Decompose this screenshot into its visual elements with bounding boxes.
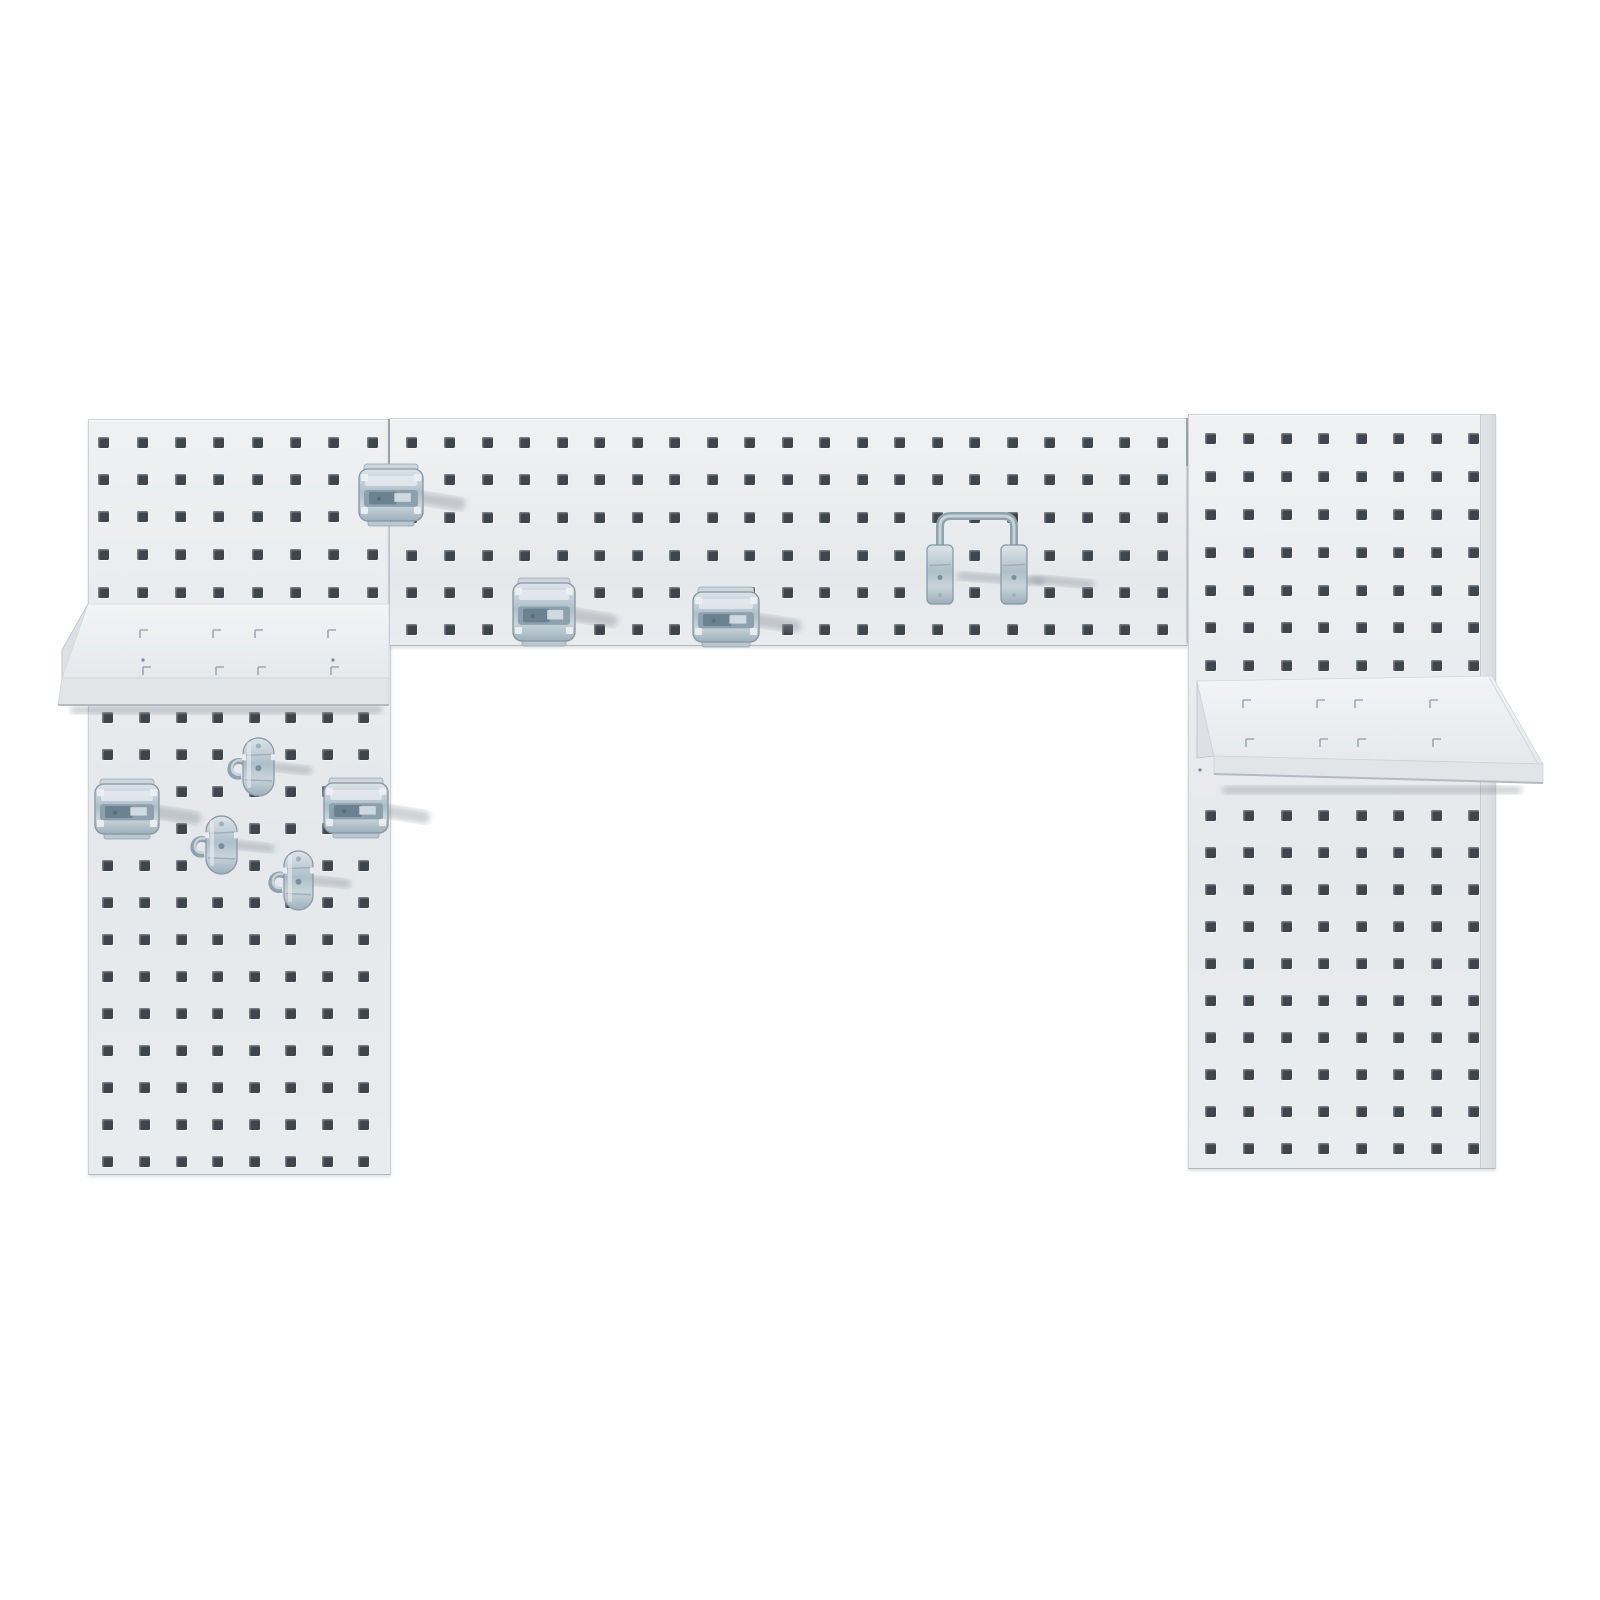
pegboard-hole	[1205, 471, 1216, 482]
pegboard-hole	[1431, 958, 1442, 969]
pegboard-hole	[1082, 512, 1093, 523]
pegboard-hole	[139, 712, 150, 723]
pegboard-hole	[1431, 585, 1442, 596]
pegboard-hole	[367, 587, 378, 598]
pegboard-hole	[212, 1156, 223, 1167]
pegboard-hole	[1082, 474, 1093, 485]
pegboard-hole	[1082, 437, 1093, 448]
pegboard-hole	[1468, 547, 1479, 558]
pegboard-hole	[1318, 509, 1329, 520]
pegboard-hole	[1205, 660, 1216, 671]
pegboard-hole	[932, 474, 943, 485]
pegboard-hole	[322, 897, 333, 908]
pegboard-hole	[322, 1156, 333, 1167]
pegboard-hole	[1356, 921, 1367, 932]
pegboard-hole	[137, 511, 148, 522]
pegboard-hole	[1356, 585, 1367, 596]
pegboard-hole	[707, 512, 718, 523]
pegboard-hole	[444, 437, 455, 448]
pegboard-hole	[285, 934, 296, 945]
pegboard-hole	[212, 1008, 223, 1019]
pegboard-hole	[669, 474, 680, 485]
pegboard-hole	[1044, 624, 1055, 635]
pegboard-hole	[1393, 884, 1404, 895]
pegboard-hole	[932, 587, 943, 598]
pegboard-hole	[322, 749, 333, 760]
pegboard-hole	[285, 1119, 296, 1130]
pegboard-hole	[1243, 921, 1254, 932]
pegboard-hole	[358, 1156, 369, 1167]
pegboard-hole	[1243, 1032, 1254, 1043]
pegboard-hole	[1243, 847, 1254, 858]
pegboard-hole	[249, 1045, 260, 1056]
pegboard-hole	[1356, 1069, 1367, 1080]
pegboard-hole	[1044, 512, 1055, 523]
pegboard-hole	[594, 550, 605, 561]
pegboard-hole	[1281, 1106, 1292, 1117]
pegboard-hole	[175, 549, 186, 560]
pegboard-hole	[358, 712, 369, 723]
pegboard-hole	[1044, 474, 1055, 485]
pegboard-hole	[857, 587, 868, 598]
pegboard-hole	[1393, 1143, 1404, 1154]
pegboard-hole	[932, 624, 943, 635]
pegboard-hole	[1044, 587, 1055, 598]
pegboard-hole	[1318, 1069, 1329, 1080]
pegboard-hole	[632, 587, 643, 598]
pegboard-hole	[358, 749, 369, 760]
pegboard-hole	[969, 624, 980, 635]
pegboard-hole	[632, 624, 643, 635]
pegboard-hole	[249, 1008, 260, 1019]
pegboard-hole	[176, 897, 187, 908]
pegboard-hole	[1468, 1143, 1479, 1154]
pegboard-hole	[444, 474, 455, 485]
pegboard-hole	[1318, 1032, 1329, 1043]
pegboard-hole	[1007, 512, 1018, 523]
pegboard-hole	[137, 437, 148, 448]
pegboard-hole	[98, 511, 109, 522]
pegboard-hole	[102, 934, 113, 945]
pegboard-hole	[632, 474, 643, 485]
pegboard-hole	[1281, 509, 1292, 520]
pegboard-hole	[1243, 509, 1254, 520]
pegboard-hole	[249, 712, 260, 723]
pegboard-hole	[1356, 810, 1367, 821]
pegboard-hole	[894, 474, 905, 485]
pegboard-hole	[1205, 1069, 1216, 1080]
pegboard-hole	[322, 823, 333, 834]
pegboard-hole	[176, 860, 187, 871]
pegboard-hole	[176, 934, 187, 945]
pegboard-hole	[139, 1008, 150, 1019]
pegboard-hole	[137, 474, 148, 485]
pegboard-hole	[1243, 433, 1254, 444]
pegboard-hole	[139, 934, 150, 945]
pegboard-hole	[249, 934, 260, 945]
pegboard-hole	[249, 1082, 260, 1093]
pegboard-hole	[857, 437, 868, 448]
pegboard-hole	[1007, 550, 1018, 561]
pegboard-hole	[1205, 509, 1216, 520]
pegboard-hole	[444, 550, 455, 561]
pegboard-hole	[1243, 884, 1254, 895]
pegboard-hole	[139, 823, 150, 834]
pegboard-hole	[328, 437, 339, 448]
pegboard-hole	[1281, 1032, 1292, 1043]
pegboard-hole	[1205, 884, 1216, 895]
pegboard-hole	[212, 786, 223, 797]
pegboard-hole	[1431, 1032, 1442, 1043]
pegboard-hole	[322, 1008, 333, 1019]
pegboard-hole	[139, 971, 150, 982]
pegboard-hole	[557, 474, 568, 485]
pegboard-hole	[1205, 433, 1216, 444]
pegboard-hole	[1157, 512, 1168, 523]
pegboard-hole	[322, 860, 333, 871]
pegboard-hole	[1468, 622, 1479, 633]
pegboard-hole	[1318, 847, 1329, 858]
pegboard-hole	[857, 550, 868, 561]
pegboard-hole	[176, 1082, 187, 1093]
pegboard-hole	[367, 549, 378, 560]
pegboard-hole	[482, 550, 493, 561]
pegboard-hole	[176, 1119, 187, 1130]
pegboard-hole	[290, 511, 301, 522]
pegboard-hole	[1393, 471, 1404, 482]
pegboard-hole	[444, 587, 455, 598]
pegboard-hole	[1281, 921, 1292, 932]
pegboard-hole	[212, 1045, 223, 1056]
pegboard-hole	[175, 511, 186, 522]
pegboard-hole	[1007, 474, 1018, 485]
pegboard-hole	[894, 624, 905, 635]
pegboard-hole	[102, 1045, 113, 1056]
pegboard-hole	[1205, 810, 1216, 821]
pegboard-hole	[1243, 995, 1254, 1006]
pegboard-hole	[1431, 810, 1442, 821]
pegboard-hole	[322, 1119, 333, 1130]
pegboard-hole	[176, 971, 187, 982]
pegboard-hole	[1243, 471, 1254, 482]
pegboard-hole	[1205, 585, 1216, 596]
pegboard-hole	[139, 1045, 150, 1056]
pegboard-hole	[139, 860, 150, 871]
pegboard-hole	[782, 512, 793, 523]
pegboard-hole	[557, 512, 568, 523]
pegboard-hole	[1243, 660, 1254, 671]
pegboard-hole	[1393, 810, 1404, 821]
pegboard-hole	[1318, 1106, 1329, 1117]
pegboard-hole	[322, 971, 333, 982]
pegboard-hole	[1119, 624, 1130, 635]
pegboard-hole	[102, 1082, 113, 1093]
pegboard-hole	[1119, 512, 1130, 523]
pegboard-hole	[819, 550, 830, 561]
pegboard-hole	[139, 1119, 150, 1130]
pegboard-hole	[139, 1156, 150, 1167]
pegboard-hole	[1281, 1143, 1292, 1154]
pegboard-hole	[358, 823, 369, 834]
pegboard-hole	[1318, 1143, 1329, 1154]
pegboard-hole	[102, 712, 113, 723]
pegboard-hole	[358, 860, 369, 871]
pegboard-hole	[406, 512, 417, 523]
pegboard-hole	[1157, 437, 1168, 448]
pegboard-hole	[669, 512, 680, 523]
pegboard-hole	[1468, 1069, 1479, 1080]
pegboard-hole	[328, 511, 339, 522]
pegboard-hole	[1468, 1106, 1479, 1117]
pegboard-hole	[139, 749, 150, 760]
pegboard-hole	[482, 624, 493, 635]
pegboard-panel-right-edge-fold	[1480, 415, 1495, 1168]
pegboard-hole	[1044, 437, 1055, 448]
pegboard-hole	[1468, 847, 1479, 858]
pegboard-hole	[212, 971, 223, 982]
pegboard-hole	[102, 1119, 113, 1130]
pegboard-hole	[358, 786, 369, 797]
pegboard-hole	[707, 624, 718, 635]
pegboard-hole	[1356, 660, 1367, 671]
pegboard-hole	[1205, 1106, 1216, 1117]
pegboard-hole	[969, 512, 980, 523]
pegboard-panel-left	[88, 419, 391, 1175]
pegboard-hole	[358, 1045, 369, 1056]
pegboard-hole	[213, 511, 224, 522]
pegboard-hole	[1157, 587, 1168, 598]
pegboard-hole	[249, 786, 260, 797]
pegboard-hole	[594, 512, 605, 523]
pegboard-hole	[139, 786, 150, 797]
pegboard-hole	[358, 971, 369, 982]
pegboard-hole	[1205, 921, 1216, 932]
pegboard-hole	[482, 587, 493, 598]
pegboard-hole	[367, 511, 378, 522]
pegboard-hole	[285, 971, 296, 982]
pegboard-hole	[1044, 550, 1055, 561]
pegboard-hole	[819, 624, 830, 635]
pegboard-hole	[406, 587, 417, 598]
pegboard-hole	[1243, 958, 1254, 969]
pegboard-hole	[1318, 921, 1329, 932]
pegboard-hole	[1431, 471, 1442, 482]
pegboard-hole	[482, 474, 493, 485]
pegboard-hole	[707, 437, 718, 448]
pegboard-hole	[285, 1008, 296, 1019]
pegboard-hole	[358, 1119, 369, 1130]
pegboard-hole	[669, 587, 680, 598]
pegboard-hole	[212, 1082, 223, 1093]
pegboard-hole	[519, 550, 530, 561]
pegboard-hole	[102, 1156, 113, 1167]
pegboard-hole	[744, 624, 755, 635]
pegboard-hole	[1393, 622, 1404, 633]
pegboard-hole	[252, 511, 263, 522]
pegboard-hole	[212, 860, 223, 871]
pegboard-hole	[175, 474, 186, 485]
pegboard-hole	[1082, 587, 1093, 598]
pegboard-hole	[406, 550, 417, 561]
pegboard-hole	[1082, 624, 1093, 635]
pegboard-hole	[1431, 847, 1442, 858]
pegboard-hole	[782, 624, 793, 635]
pegboard-hole	[102, 897, 113, 908]
pegboard-hole	[212, 749, 223, 760]
pegboard-hole	[1318, 958, 1329, 969]
pegboard-hole	[358, 934, 369, 945]
pegboard-hole	[1393, 847, 1404, 858]
pegboard-hole	[1281, 847, 1292, 858]
pegboard-hole	[290, 549, 301, 560]
pegboard-hole	[1356, 847, 1367, 858]
pegboard-hole	[252, 437, 263, 448]
pegboard-hole	[1431, 1143, 1442, 1154]
pegboard-hole	[1281, 1069, 1292, 1080]
pegboard-hole	[1431, 1106, 1442, 1117]
pegboard-hole	[285, 897, 296, 908]
pegboard-hole	[212, 823, 223, 834]
pegboard-hole	[594, 437, 605, 448]
pegboard-hole	[285, 786, 296, 797]
pegboard-hole	[1205, 958, 1216, 969]
pegboard-hole	[1468, 810, 1479, 821]
pegboard-hole	[1157, 624, 1168, 635]
pegboard-hole	[669, 437, 680, 448]
pegboard-hole	[249, 897, 260, 908]
pegboard-hole	[482, 437, 493, 448]
pegboard-hole	[285, 1045, 296, 1056]
pegboard-hole	[137, 549, 148, 560]
pegboard-hole	[290, 437, 301, 448]
pegboard-hole	[557, 550, 568, 561]
pegboard-hole	[519, 474, 530, 485]
pegboard-hole	[1205, 1032, 1216, 1043]
pegboard-hole	[557, 587, 568, 598]
pegboard-hole	[1431, 884, 1442, 895]
pegboard-hole	[1243, 1106, 1254, 1117]
pegboard-hole	[213, 437, 224, 448]
pegboard-hole	[1393, 547, 1404, 558]
pegboard-hole	[857, 512, 868, 523]
pegboard-hole	[1356, 995, 1367, 1006]
pegboard-hole	[1393, 958, 1404, 969]
pegboard-hole	[406, 474, 417, 485]
pegboard-hole	[176, 749, 187, 760]
pegboard-hole	[632, 550, 643, 561]
pegboard-hole	[557, 437, 568, 448]
pegboard-hole	[322, 934, 333, 945]
pegboard-hole	[1356, 471, 1367, 482]
pegboard-hole	[1356, 622, 1367, 633]
pegboard-hole	[1356, 1106, 1367, 1117]
pegboard-hole	[102, 823, 113, 834]
pegboard-hole	[1119, 474, 1130, 485]
pegboard-hole	[1318, 547, 1329, 558]
pegboard-hole	[176, 823, 187, 834]
pegboard-hole	[594, 624, 605, 635]
pegboard-hole	[1205, 847, 1216, 858]
pegboard-hole	[932, 437, 943, 448]
pegboard-hole	[1468, 585, 1479, 596]
pegboard-hole	[175, 587, 186, 598]
pegboard-hole	[1468, 660, 1479, 671]
pegboard-hole	[932, 550, 943, 561]
pegboard-hole	[707, 474, 718, 485]
pegboard-hole	[139, 897, 150, 908]
pegboard-hole	[98, 474, 109, 485]
pegboard-hole	[1281, 995, 1292, 1006]
pegboard-hole	[1431, 1069, 1442, 1080]
pegboard-hole	[1356, 1143, 1367, 1154]
pegboard-hole	[969, 550, 980, 561]
pegboard-hole	[1119, 437, 1130, 448]
pegboard-hole	[557, 624, 568, 635]
pegboard-hole	[1356, 958, 1367, 969]
pegboard-hole	[707, 587, 718, 598]
pegboard-hole	[249, 823, 260, 834]
pegboard-hole	[285, 712, 296, 723]
pegboard-hole	[1431, 622, 1442, 633]
pegboard-hole	[744, 587, 755, 598]
pegboard-hole	[1281, 622, 1292, 633]
pegboard-hole	[213, 587, 224, 598]
pegboard-hole	[367, 474, 378, 485]
pegboard-hole	[176, 1156, 187, 1167]
pegboard-hole	[1281, 884, 1292, 895]
pegboard-hole	[406, 624, 417, 635]
pegboard-hole	[1318, 660, 1329, 671]
pegboard-hole	[176, 1008, 187, 1019]
pegboard-hole	[1431, 660, 1442, 671]
pegboard-hole	[137, 587, 148, 598]
pegboard-hole	[819, 587, 830, 598]
pegboard-hole	[367, 437, 378, 448]
pegboard-hole	[252, 549, 263, 560]
pegboard-hole	[328, 474, 339, 485]
pegboard-hole	[252, 587, 263, 598]
pegboard-hole	[249, 971, 260, 982]
pegboard-hole	[249, 1156, 260, 1167]
pegboard-hole	[358, 1008, 369, 1019]
pegboard-hole	[1468, 1032, 1479, 1043]
pegboard-hole	[1431, 547, 1442, 558]
pegboard-hole	[213, 549, 224, 560]
pegboard-hole	[744, 512, 755, 523]
pegboard-hole	[1431, 509, 1442, 520]
pegboard-hole	[1318, 884, 1329, 895]
pegboard-hole	[1431, 433, 1442, 444]
pegboard-hole	[212, 897, 223, 908]
pegboard-hole	[175, 437, 186, 448]
pegboard-hole	[444, 624, 455, 635]
pegboard-hole	[519, 624, 530, 635]
pegboard-hole	[102, 749, 113, 760]
pegboard-hole	[632, 437, 643, 448]
pegboard-hole	[290, 474, 301, 485]
pegboard-hole	[1318, 622, 1329, 633]
pegboard-hole	[632, 512, 643, 523]
pegboard-hole	[322, 1045, 333, 1056]
pegboard-hole	[1393, 995, 1404, 1006]
pegboard-hole	[669, 550, 680, 561]
pegboard-hole	[285, 1082, 296, 1093]
pegboard-hole	[249, 860, 260, 871]
pegboard-hole	[285, 823, 296, 834]
pegboard-hole	[1468, 921, 1479, 932]
pegboard-hole	[285, 749, 296, 760]
pegboard-hole	[669, 624, 680, 635]
